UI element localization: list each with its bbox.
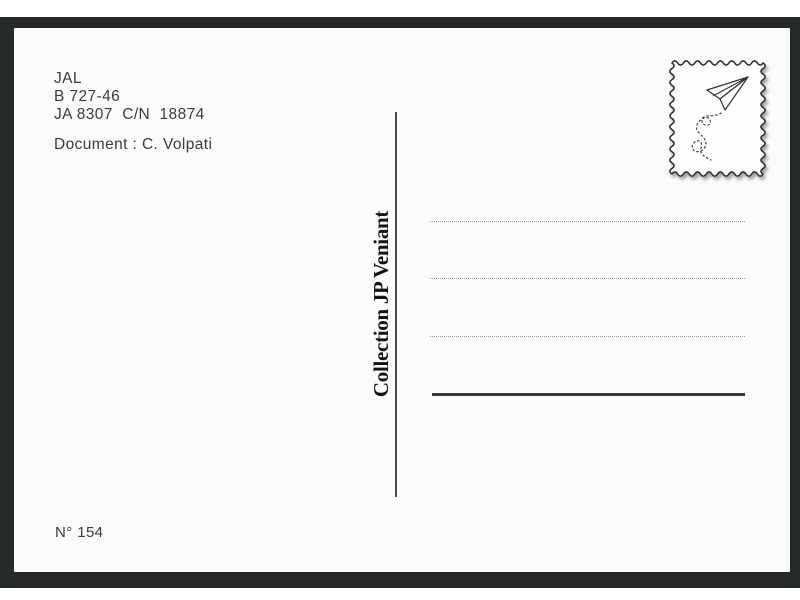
address-line-dotted: [430, 278, 745, 279]
address-line-solid: [432, 393, 745, 396]
vertical-divider-rule: [395, 112, 397, 497]
scanned-postcard-photo: JAL B 727-46 JA 8307 C/N 18874 Document …: [0, 0, 800, 600]
card-number-label: N° 154: [55, 524, 103, 541]
aircraft-info-block: JAL B 727-46 JA 8307 C/N 18874 Document …: [54, 70, 212, 154]
address-line-dotted: [430, 221, 745, 222]
aircraft-type: B 727-46: [54, 88, 212, 106]
stamp-box: [667, 57, 768, 180]
registration-serial: JA 8307 C/N 18874: [54, 106, 212, 124]
airline-name: JAL: [54, 70, 212, 88]
paper-plane-icon: [667, 57, 768, 180]
address-line-dotted: [430, 336, 745, 337]
postcard-back: JAL B 727-46 JA 8307 C/N 18874 Document …: [14, 28, 790, 572]
collection-credit-vertical-text: Collection JP Veniant: [369, 154, 395, 454]
document-credit: Document : C. Volpati: [54, 136, 212, 154]
